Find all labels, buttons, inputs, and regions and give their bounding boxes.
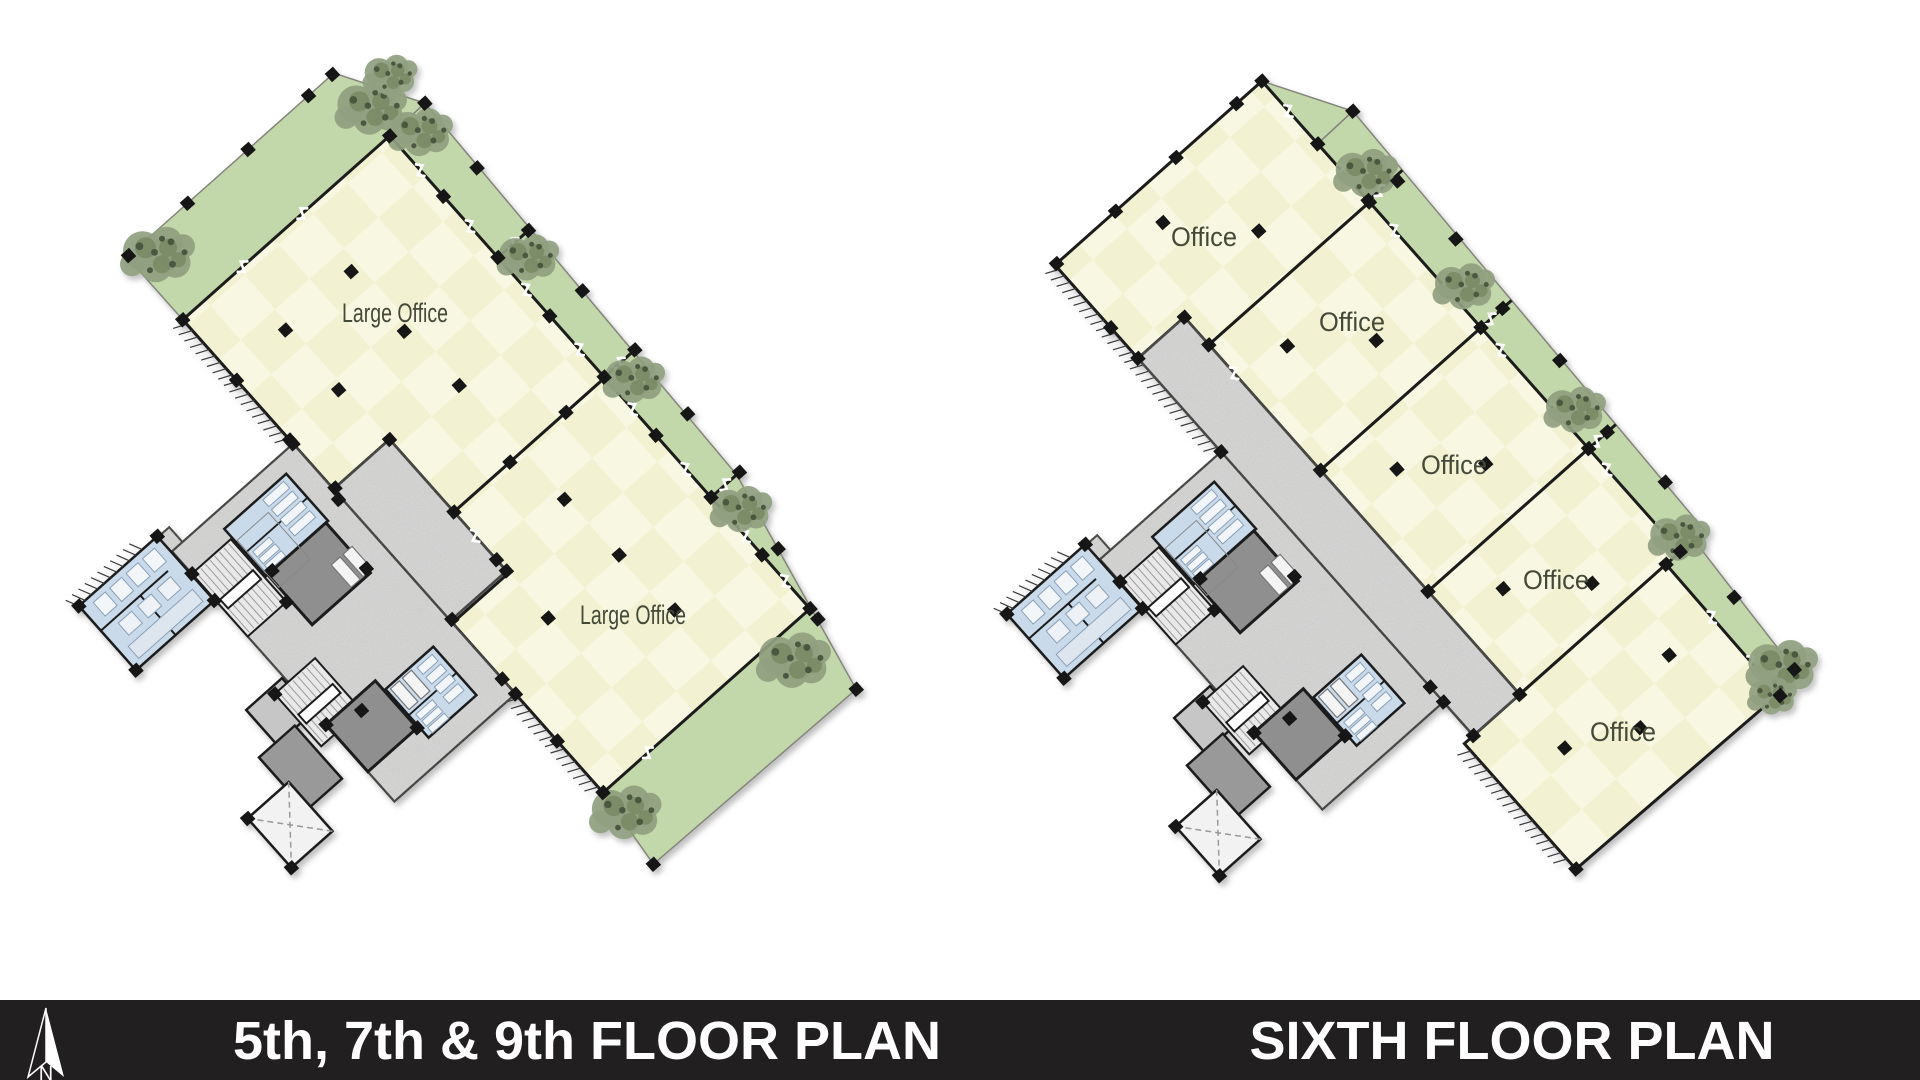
svg-text:Office: Office [1590,717,1656,747]
svg-text:Office: Office [1523,565,1589,595]
svg-text:N: N [39,1063,53,1080]
svg-text:5th, 7th & 9th FLOOR PLAN: 5th, 7th & 9th FLOOR PLAN [233,1011,941,1071]
svg-text:SIXTH FLOOR PLAN: SIXTH FLOOR PLAN [1250,1011,1775,1071]
svg-text:Large Office: Large Office [580,600,686,630]
svg-text:Office: Office [1319,307,1385,337]
svg-text:Office: Office [1171,222,1237,252]
svg-text:Office: Office [1421,450,1487,480]
svg-text:Large Office: Large Office [342,298,448,328]
